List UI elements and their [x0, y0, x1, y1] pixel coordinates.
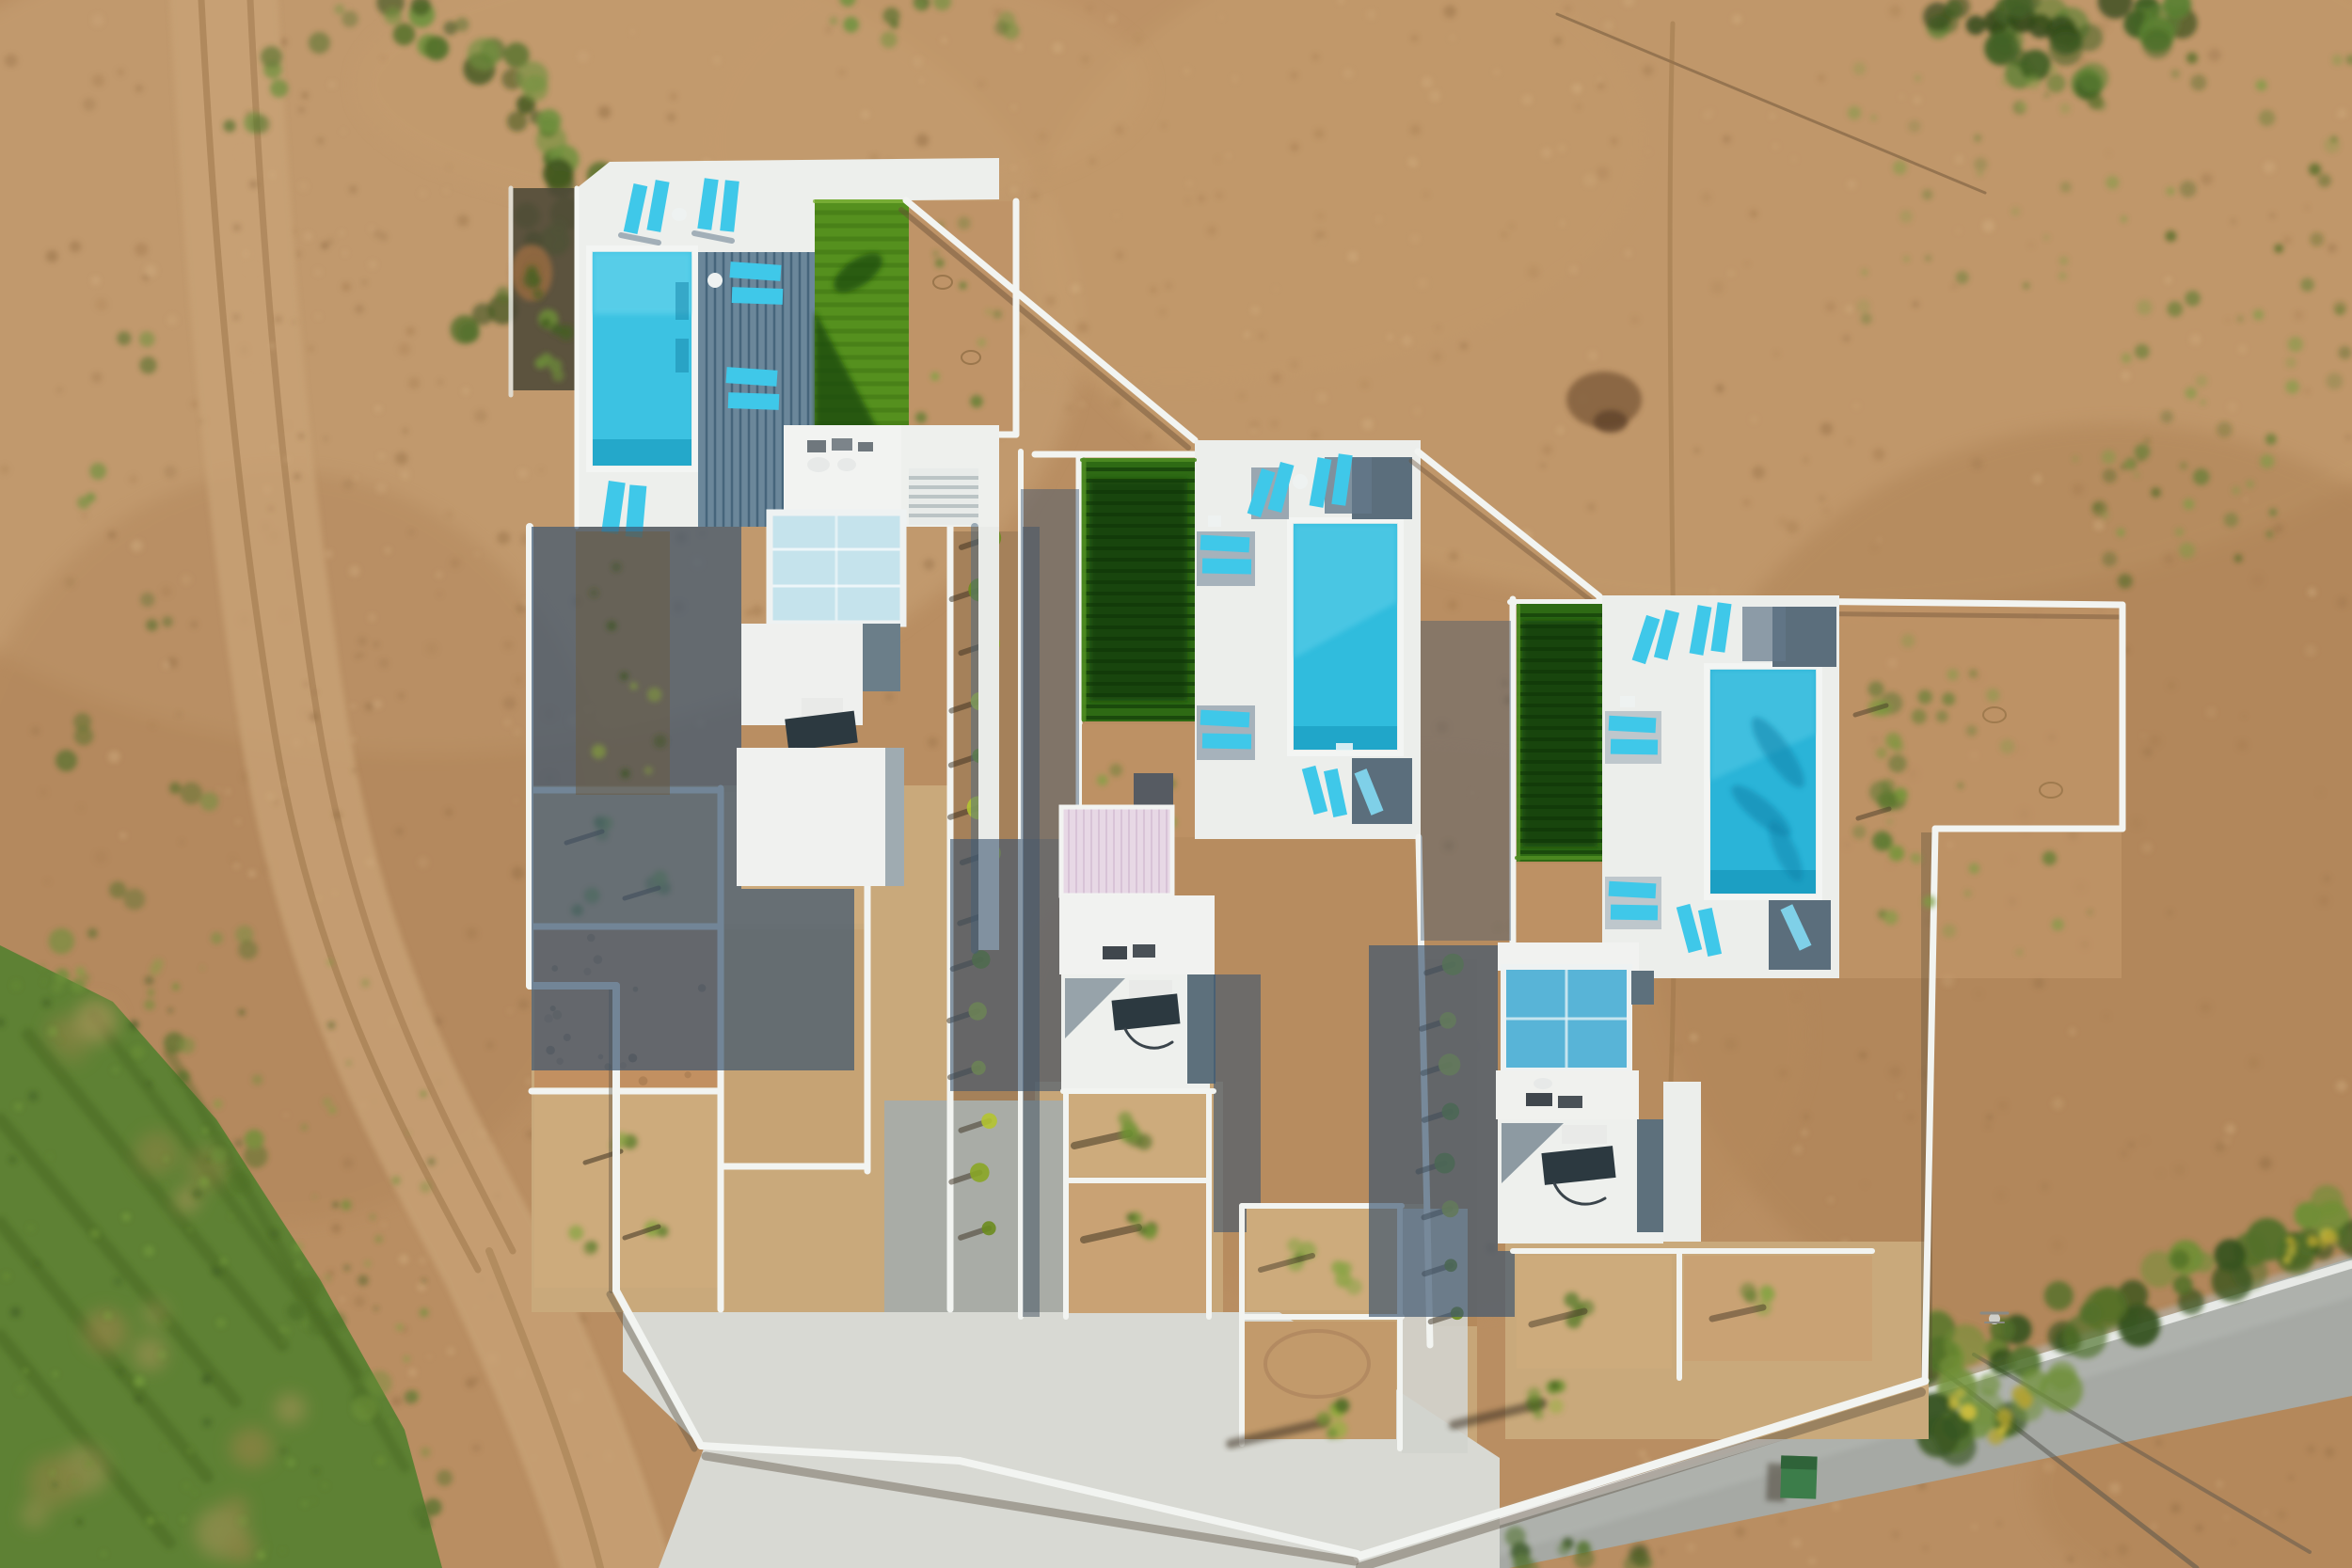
gray-slab — [884, 1101, 1068, 1312]
layer-villa-2-courtyard — [1063, 1091, 1214, 1317]
aerial-villas-photo — [0, 0, 2352, 1568]
villa2-pink-pergola — [1061, 807, 1172, 895]
scene-svg — [0, 0, 2352, 1568]
villa3-shadow — [1369, 945, 1515, 1317]
